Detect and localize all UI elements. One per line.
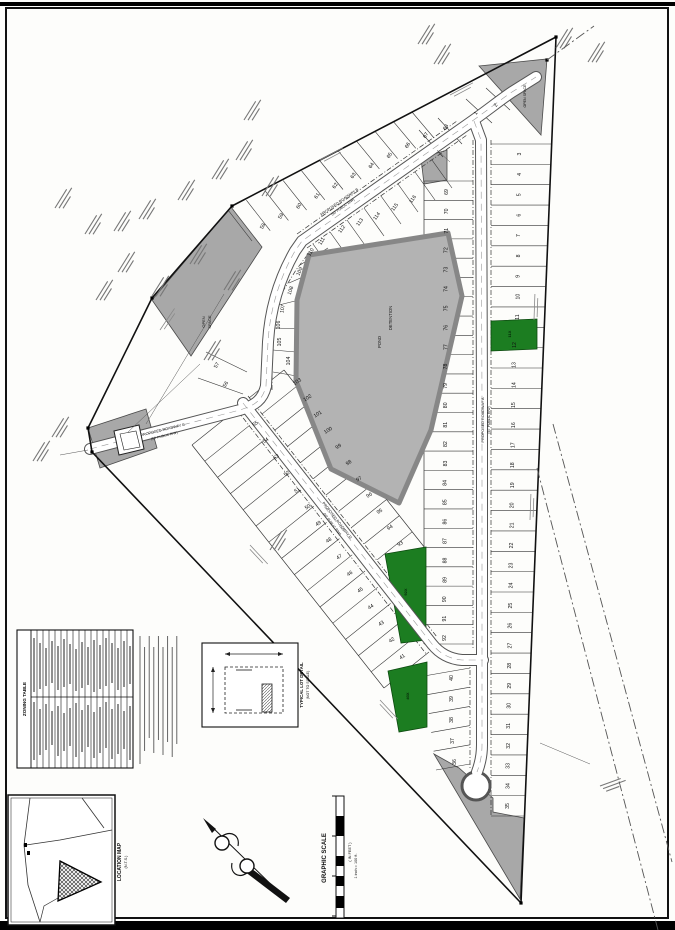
lot-number: 26: [508, 623, 514, 629]
lot-number: 88: [442, 557, 448, 563]
lot-number: 75: [443, 305, 449, 311]
lot-number: 4: [517, 173, 523, 176]
map-annotation: DETENTION: [388, 306, 393, 330]
lot-number: 92: [442, 635, 448, 641]
map-annotation: POND: [377, 336, 382, 348]
green-lot-label: 11X: [507, 330, 512, 337]
lot-number: 82: [443, 441, 449, 447]
generated-plat-content: 11X92X40X3456789101112131415161718192021…: [0, 0, 675, 930]
lot-number: 77: [443, 344, 449, 350]
lot-number: 105: [277, 338, 283, 347]
zoning-table-title: ZONING TABLE: [22, 682, 27, 716]
lot-number: 22: [509, 542, 515, 548]
boundary-corner-marker: [150, 296, 153, 299]
lot-number: 17: [510, 442, 516, 448]
lot-number: 12: [512, 342, 518, 348]
lot-number: 32: [506, 743, 512, 749]
existing-building: [114, 425, 144, 455]
lot-number: 20: [510, 502, 516, 508]
lot-number: 71: [444, 228, 450, 234]
lot-number: 16: [511, 422, 517, 428]
lot-number: 11: [515, 314, 521, 319]
lot-number: 25: [508, 603, 514, 609]
lot-number: 18: [510, 462, 516, 468]
green-lot-label: 40X: [405, 692, 410, 699]
lot-number: 89: [442, 577, 448, 583]
lot-detail-subtitle: (NOT TO SCALE): [306, 671, 310, 700]
map-annotation: OPEN: [201, 316, 206, 327]
lot-number: 36: [452, 759, 458, 765]
scale-bar-segment: [336, 896, 344, 908]
scale-bar-segment: [336, 816, 344, 836]
lot-number: 34: [505, 783, 511, 789]
lot-number: 91: [442, 616, 448, 622]
lot-number: 81: [443, 422, 449, 428]
scale-bar-segment: [336, 876, 344, 886]
plat-sheet: 11X92X40X3456789101112131415161718192021…: [0, 0, 675, 930]
boundary-corner-marker: [86, 426, 89, 429]
boundary-corner-marker: [519, 901, 522, 904]
lot-number: 40: [449, 675, 455, 681]
lot-number: 86: [443, 519, 449, 525]
green-lot-label: 92X: [403, 588, 408, 595]
lot-number: 85: [443, 499, 449, 505]
scale-bar-segment: [336, 856, 344, 866]
lot-number: 33: [506, 763, 512, 769]
lot-number: 28: [507, 663, 513, 669]
lot-number: 10: [515, 294, 521, 300]
zoning-table: ZONING TABLE: [17, 630, 133, 768]
location-map: LOCATION MAP(N.T.S.): [8, 795, 128, 925]
lot-number: 5: [517, 193, 523, 196]
location-map-marker: [24, 843, 27, 847]
lot-number: 7: [516, 234, 522, 237]
lot-number: 29: [507, 683, 513, 689]
lot-number: 23: [509, 562, 515, 568]
lot-number: 79: [443, 383, 449, 389]
culdesac: [464, 774, 489, 799]
lot-detail-border: [202, 643, 298, 727]
lot-number: 35: [505, 803, 511, 809]
north-arrow-scroll: [215, 836, 229, 850]
location-map-title: LOCATION MAP: [117, 842, 123, 881]
typical-lot-detail: TYPICAL LOT DETAIL(NOT TO SCALE): [202, 643, 310, 727]
lot-number: 39: [449, 696, 455, 702]
plat-drawing: 11X92X40X3456789101112131415161718192021…: [0, 0, 675, 930]
boundary-corner-marker: [554, 35, 557, 38]
graphic-scale-title: GRAPHIC SCALE: [322, 833, 328, 883]
lot-number: 90: [442, 596, 448, 602]
location-map-marker: [27, 851, 30, 855]
graphic-scale-ratio: 1 inch = 100 ft.: [354, 853, 358, 878]
lot-number: 104: [286, 357, 292, 366]
road-name-label: PROPOSED ROADWAY A: [481, 397, 485, 443]
lot-number: 76: [443, 325, 449, 331]
location-map-subtitle: (N.T.S.): [124, 855, 128, 869]
map-annotation: SPACE: [207, 315, 212, 329]
map-annotation: OPEN SPACE: [523, 84, 527, 108]
lot-number: 38: [449, 717, 455, 723]
lot-number: 72: [444, 247, 450, 253]
lot-number: 106: [276, 321, 282, 330]
lot-number: 9: [516, 275, 522, 278]
lot-number: 14: [511, 382, 517, 388]
lot-number: 74: [444, 286, 450, 292]
lot-number: 73: [444, 267, 450, 273]
north-arrow-scroll: [240, 859, 254, 873]
boundary-corner-marker: [230, 204, 233, 207]
location-map-border: [8, 795, 115, 925]
lot-detail-building: [262, 684, 272, 712]
graphic-scale-units: ( IN FEET ): [348, 842, 352, 862]
lot-number: 87: [442, 538, 448, 544]
lot-number: 8: [516, 254, 522, 257]
lot-number: 37: [450, 738, 456, 744]
lot-number: 15: [511, 402, 517, 408]
lot-number: 80: [443, 402, 449, 408]
lot-number: 69: [444, 189, 450, 195]
boundary-corner-marker: [90, 450, 93, 453]
lot-number: 83: [443, 460, 449, 466]
sheet-top-edge: [0, 2, 675, 6]
lot-number: 31: [506, 723, 512, 729]
lot-number: 3: [517, 152, 523, 155]
lot-number: 6: [516, 214, 522, 217]
lot-number: 78: [443, 364, 449, 370]
lot-detail-title: TYPICAL LOT DETAIL: [299, 662, 304, 708]
lot-number: 21: [509, 522, 515, 528]
lot-number: 24: [508, 583, 514, 589]
lot-number: 27: [507, 643, 513, 649]
lot-number: 13: [512, 362, 518, 368]
lot-number: 30: [507, 703, 513, 709]
lot-number: 70: [444, 208, 450, 214]
road-row-label: (50' PUBLIC R/W): [487, 406, 491, 433]
lot-number: 84: [443, 480, 449, 486]
lot-number: 19: [510, 482, 516, 488]
